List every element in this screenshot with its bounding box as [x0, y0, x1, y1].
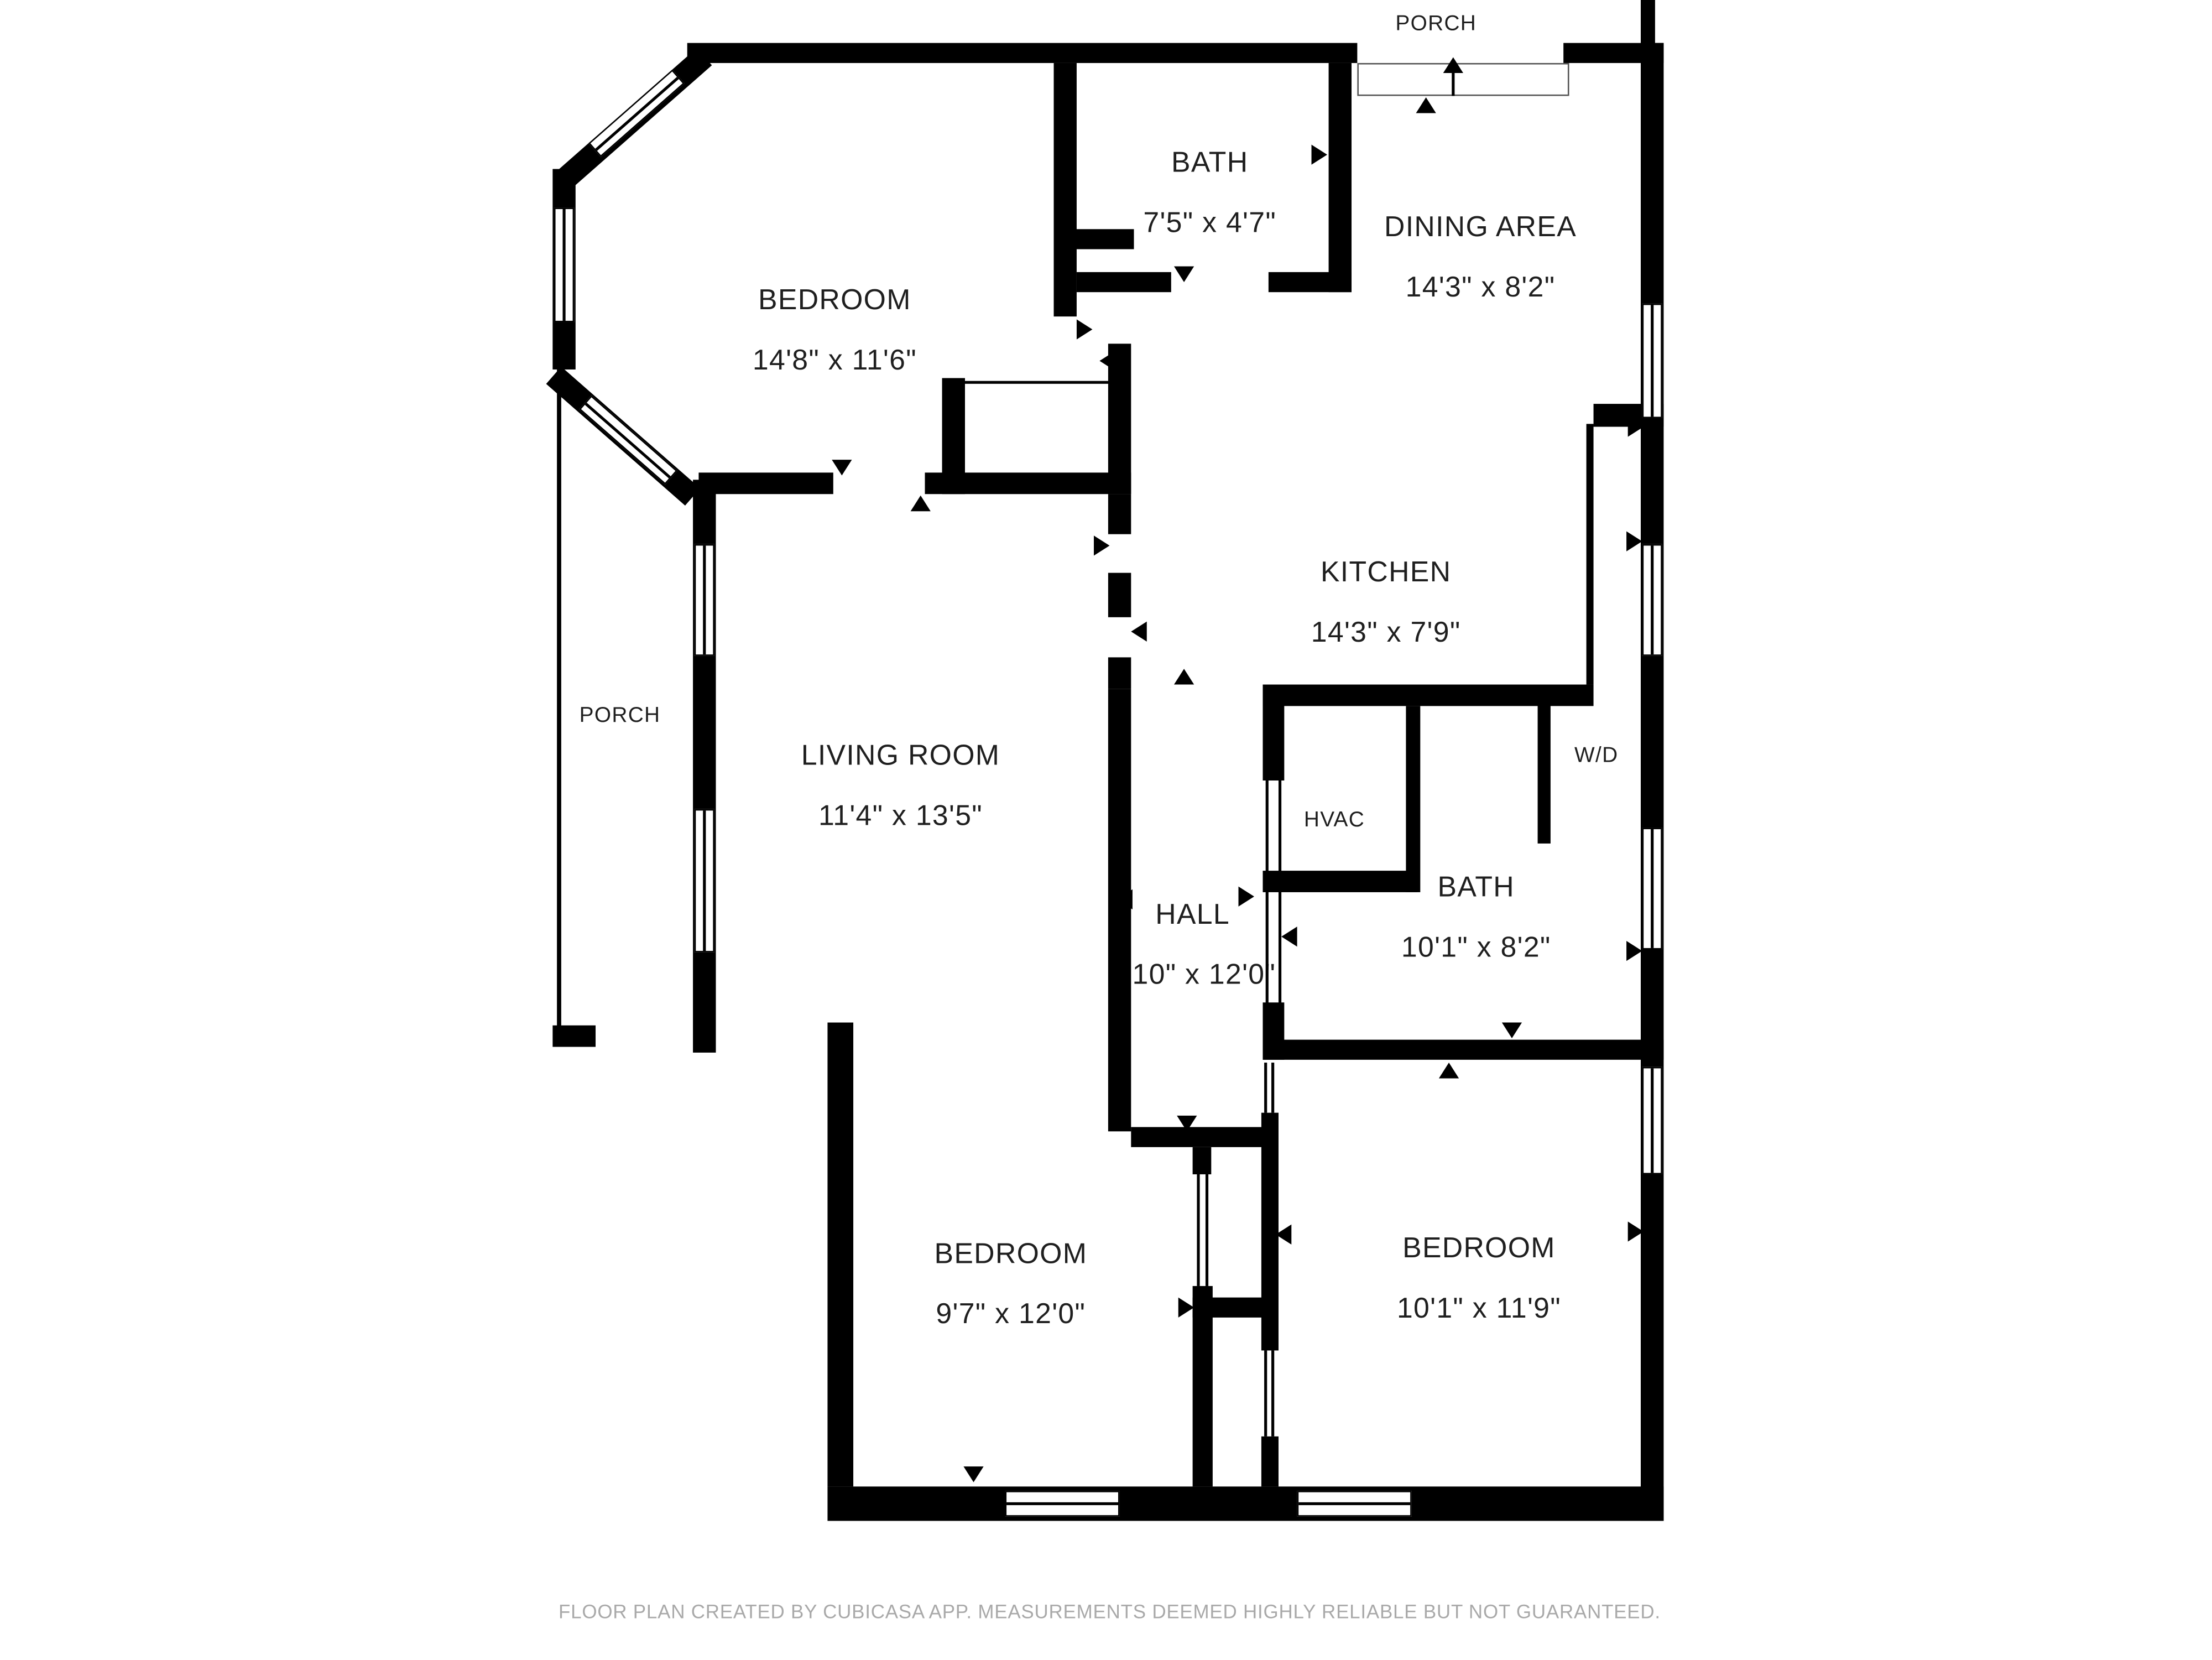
door-arrow-bath2-south-icon — [1502, 1023, 1522, 1038]
jamb-bedroom3-low-a — [1264, 1350, 1267, 1436]
jamb-hvac-b — [1279, 780, 1281, 1005]
room-name: BEDROOM — [935, 1237, 1088, 1272]
door-arrow-kitchen-right-icon — [1626, 532, 1642, 551]
door-arrow-bath2-right-icon — [1626, 941, 1642, 961]
jamb-closet2-a — [1197, 1174, 1199, 1286]
door-arrow-closet2-low-icon — [1178, 1298, 1194, 1318]
room-name: LIVING ROOM — [801, 739, 1000, 773]
wall-bedroom1-bottom-a — [698, 472, 833, 494]
wall-bottom — [827, 1486, 1663, 1521]
door-arrow-bedroom1-icon — [1077, 319, 1092, 339]
floor-plan: BATH 7'5" x 4'7" DINING AREA 14'3" x 8'2… — [0, 0, 2212, 1660]
room-label-bath2: BATH 10'1" x 8'2" — [1401, 871, 1551, 965]
wall-closet2-left-a — [1193, 1147, 1212, 1174]
wall-closet2-top — [1131, 1127, 1274, 1147]
door-arrow-living-east-icon — [1094, 535, 1109, 555]
wall-bath1-bottom-left — [1077, 272, 1171, 292]
room-name: BEDROOM — [753, 284, 917, 318]
door-arrow-hall-kitchen-icon — [1174, 669, 1194, 684]
room-dims: 9'7" x 12'0" — [935, 1298, 1088, 1332]
wall-hvac-left — [1262, 689, 1284, 780]
jamb-bedroom3-top-b — [1271, 1063, 1274, 1113]
door-arrow-living-north-icon — [911, 496, 931, 511]
room-dims: 7'5" x 4'7" — [1143, 206, 1276, 241]
jamb-bedroom3-low-b — [1271, 1350, 1274, 1436]
room-dims: 10'1" x 8'2" — [1401, 931, 1551, 965]
room-label-bedroom1: BEDROOM 14'8" x 11'6" — [753, 284, 917, 378]
wall-bath1-right — [1329, 63, 1352, 292]
wall-wd-partition — [1538, 689, 1551, 844]
room-label-bath1: BATH 7'5" x 4'7" — [1143, 146, 1276, 241]
room-dims: 11'4" x 13'5" — [801, 799, 1000, 834]
wall-living-hall-c — [1108, 657, 1131, 689]
room-dims: 14'3" x 7'9" — [1311, 616, 1461, 650]
door-arrow-entry-icon — [1416, 97, 1436, 113]
wall-closet1-top — [965, 381, 1111, 384]
window-bay-diagonal-upper — [588, 70, 685, 158]
window-bay-diagonal-lower — [579, 396, 677, 485]
footer-disclaimer: FLOOR PLAN CREATED BY CUBICASA APP. MEAS… — [559, 1601, 1661, 1623]
room-label-kitchen: KITCHEN 14'3" x 7'9" — [1311, 556, 1461, 651]
porch-left-edge — [557, 370, 561, 1031]
window-bath2-right — [1642, 828, 1662, 949]
room-dims: 10'1" x 11'9" — [1397, 1292, 1561, 1326]
room-name: KITCHEN — [1311, 556, 1461, 590]
label-porch-left: PORCH — [580, 703, 661, 729]
wall-bedroom2-west — [827, 1023, 853, 1487]
wall-top-stub — [1641, 0, 1655, 46]
wall-hvac-bottom — [1262, 871, 1417, 892]
window-bedroom3-bottom — [1297, 1491, 1412, 1517]
door-arrow-bath1-icon — [1174, 267, 1194, 282]
door-arrow-bath1-east-icon — [1312, 144, 1327, 164]
room-dims: 14'3" x 8'2" — [1384, 270, 1577, 305]
room-dims: 3'10" x 12'0" — [1109, 958, 1276, 992]
door-arrow-bedroom3-right-icon — [1628, 1221, 1644, 1241]
door-arrow-bedroom1-b-icon — [1099, 351, 1115, 371]
room-label-dining: DINING AREA 14'3" x 8'2" — [1384, 211, 1577, 305]
wall-bath1-left — [1054, 63, 1077, 316]
room-label-hall: HALL 3'10" x 12'0" — [1109, 898, 1276, 992]
porch-left-stub — [552, 1026, 596, 1047]
door-arrow-hall-west-icon — [1117, 889, 1132, 909]
entry-arrow-head-icon — [1443, 58, 1463, 73]
wall-bedroom3-west-b — [1261, 1437, 1279, 1487]
wall-living-hall-a — [1108, 494, 1131, 534]
wall-kitchen-counter — [1587, 424, 1594, 684]
window-kitchen-right — [1642, 544, 1662, 656]
door-arrow-bedroom3-north-icon — [1439, 1063, 1459, 1078]
door-arrow-hall-east-icon — [1238, 887, 1254, 907]
wall-bath2-bottom — [1262, 1040, 1663, 1060]
room-label-bedroom2: BEDROOM 9'7" x 12'0" — [935, 1237, 1088, 1332]
window-bedroom2-bottom — [1005, 1491, 1119, 1517]
entry-arrow-line — [1452, 71, 1454, 96]
jamb-hvac-a — [1266, 780, 1269, 1005]
wall-top-left — [687, 43, 1358, 63]
label-hvac: HVAC — [1304, 808, 1365, 834]
wall-bath1-nib — [1054, 229, 1134, 249]
door-arrow-bath2-icon — [1281, 927, 1297, 946]
label-wd: W/D — [1574, 743, 1618, 769]
door-arrow-bedroom2-south-icon — [963, 1466, 983, 1482]
room-label-bedroom3: BEDROOM 10'1" x 11'9" — [1397, 1232, 1561, 1326]
door-arrow-bedroom1-south-icon — [832, 460, 852, 475]
label-porch-top: PORCH — [1395, 12, 1477, 38]
room-label-living: LIVING ROOM 11'4" x 13'5" — [801, 739, 1000, 834]
window-bedroom3-right — [1642, 1067, 1662, 1174]
room-name: BEDROOM — [1397, 1232, 1561, 1266]
wall-hall-west — [1108, 689, 1131, 1131]
door-arrow-bedroom3-icon — [1276, 1225, 1291, 1245]
wall-living-hall-b — [1108, 573, 1131, 617]
jamb-closet2-b — [1206, 1174, 1208, 1286]
door-arrow-living-east-b-icon — [1131, 622, 1146, 642]
window-bay-left — [554, 207, 574, 322]
wall-hvac-right — [1406, 706, 1420, 892]
jamb-bedroom3-top-a — [1264, 1063, 1267, 1113]
window-living-west-upper — [695, 544, 714, 656]
room-name: DINING AREA — [1384, 211, 1577, 245]
room-dims: 14'8" x 11'6" — [753, 344, 917, 378]
door-arrow-dining-right-icon — [1628, 417, 1644, 436]
door-arrow-closet2-icon — [1177, 1116, 1197, 1131]
room-name: BATH — [1401, 871, 1551, 905]
window-dining-right — [1642, 304, 1662, 418]
wall-bedroom1-bottom-b — [925, 472, 1131, 494]
room-name: BATH — [1143, 146, 1276, 180]
wall-right — [1641, 43, 1663, 1521]
window-living-west-lower — [695, 809, 714, 953]
